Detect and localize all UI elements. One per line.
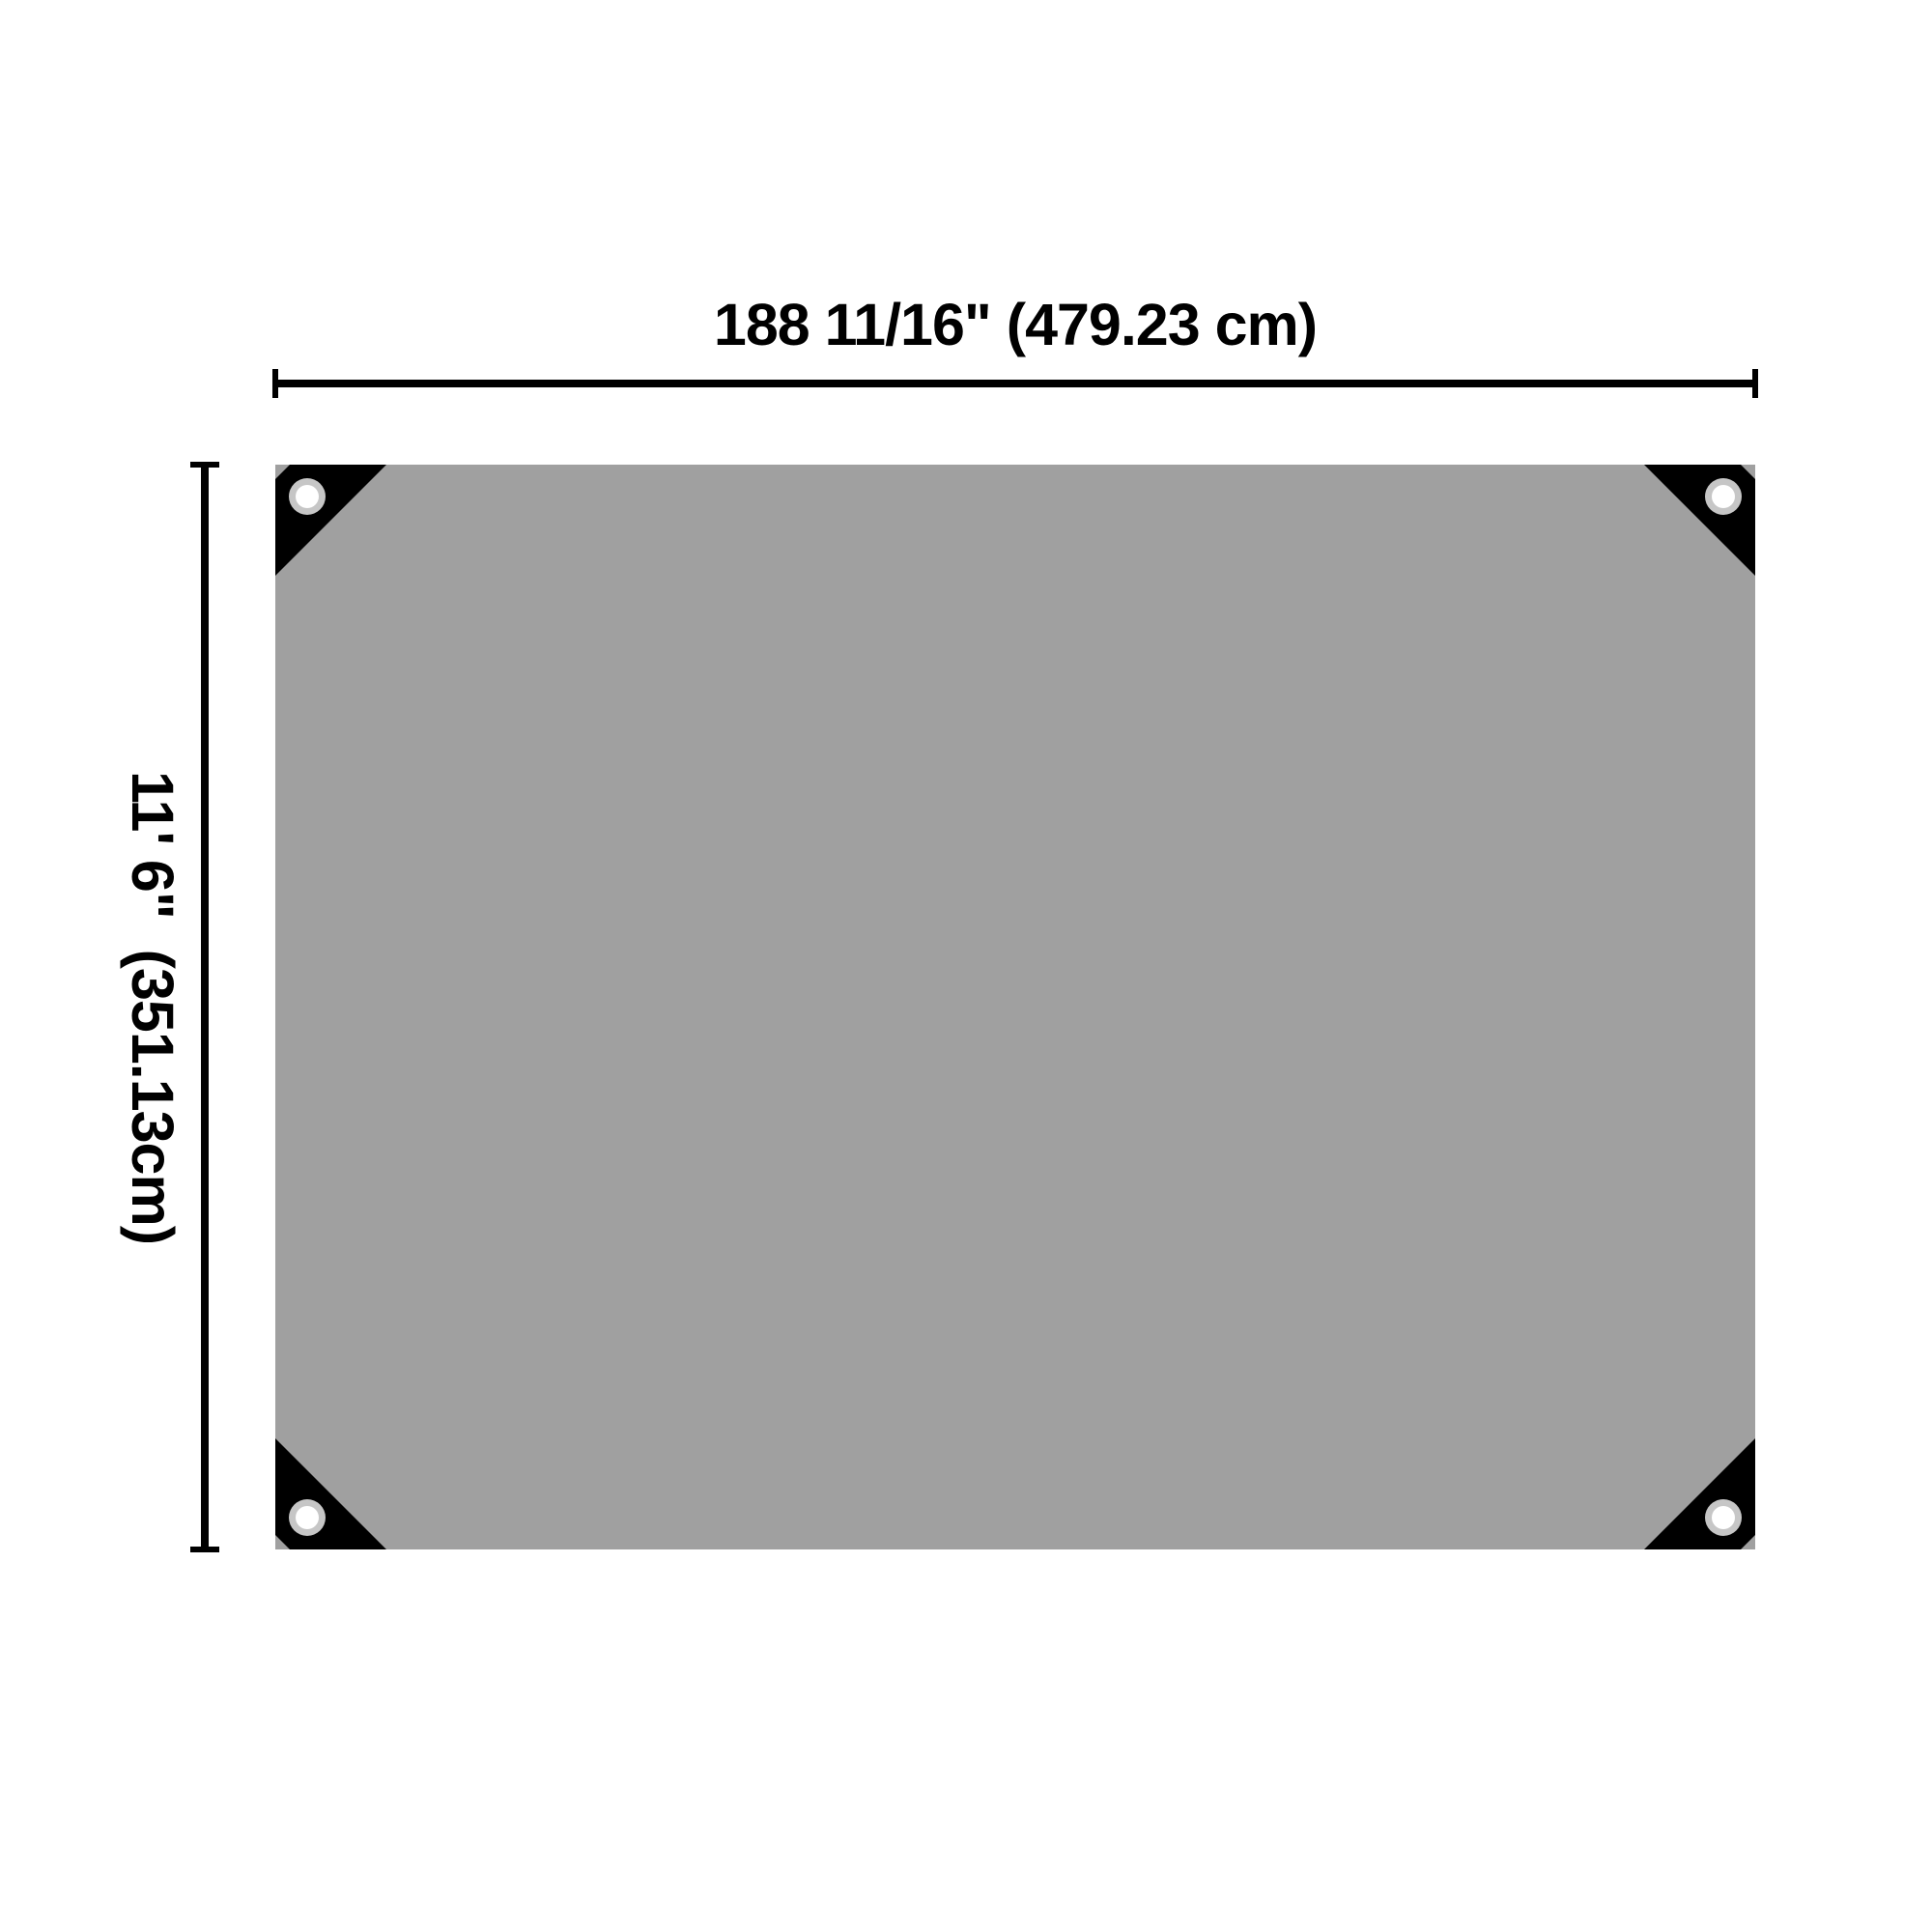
grommet-top-right bbox=[1705, 478, 1742, 515]
width-dimension-bar bbox=[272, 380, 1758, 387]
grommet-hole-top-right bbox=[1712, 485, 1735, 508]
tarp bbox=[275, 465, 1755, 1549]
width-dimension-line bbox=[272, 369, 1758, 398]
height-dimension-bar bbox=[201, 462, 209, 1552]
height-dimension-tick-bottom bbox=[190, 1547, 219, 1552]
height-dimension-line bbox=[190, 462, 219, 1552]
grommet-bottom-right bbox=[1705, 1499, 1742, 1536]
corner-patch-top-right bbox=[1644, 465, 1755, 576]
grommet-hole-bottom-right bbox=[1712, 1506, 1735, 1529]
grommet-bottom-left bbox=[289, 1499, 326, 1536]
corner-patch-top-left bbox=[275, 465, 386, 576]
corner-patch-bottom-left bbox=[275, 1438, 386, 1549]
width-dimension-label: 188 11/16" (479.23 cm) bbox=[275, 292, 1755, 357]
grommet-top-left bbox=[289, 478, 326, 515]
width-dimension-tick-right bbox=[1752, 369, 1758, 398]
diagram-canvas: 188 11/16" (479.23 cm) 11' 6" (351.13cm) bbox=[0, 0, 1932, 1932]
height-dimension-label-wrapper: 11' 6" (351.13cm) bbox=[108, 465, 197, 1549]
grommet-hole-top-left bbox=[296, 485, 319, 508]
grommet-hole-bottom-left bbox=[296, 1506, 319, 1529]
height-dimension-label: 11' 6" (351.13cm) bbox=[119, 770, 186, 1243]
corner-patch-bottom-right bbox=[1644, 1438, 1755, 1549]
